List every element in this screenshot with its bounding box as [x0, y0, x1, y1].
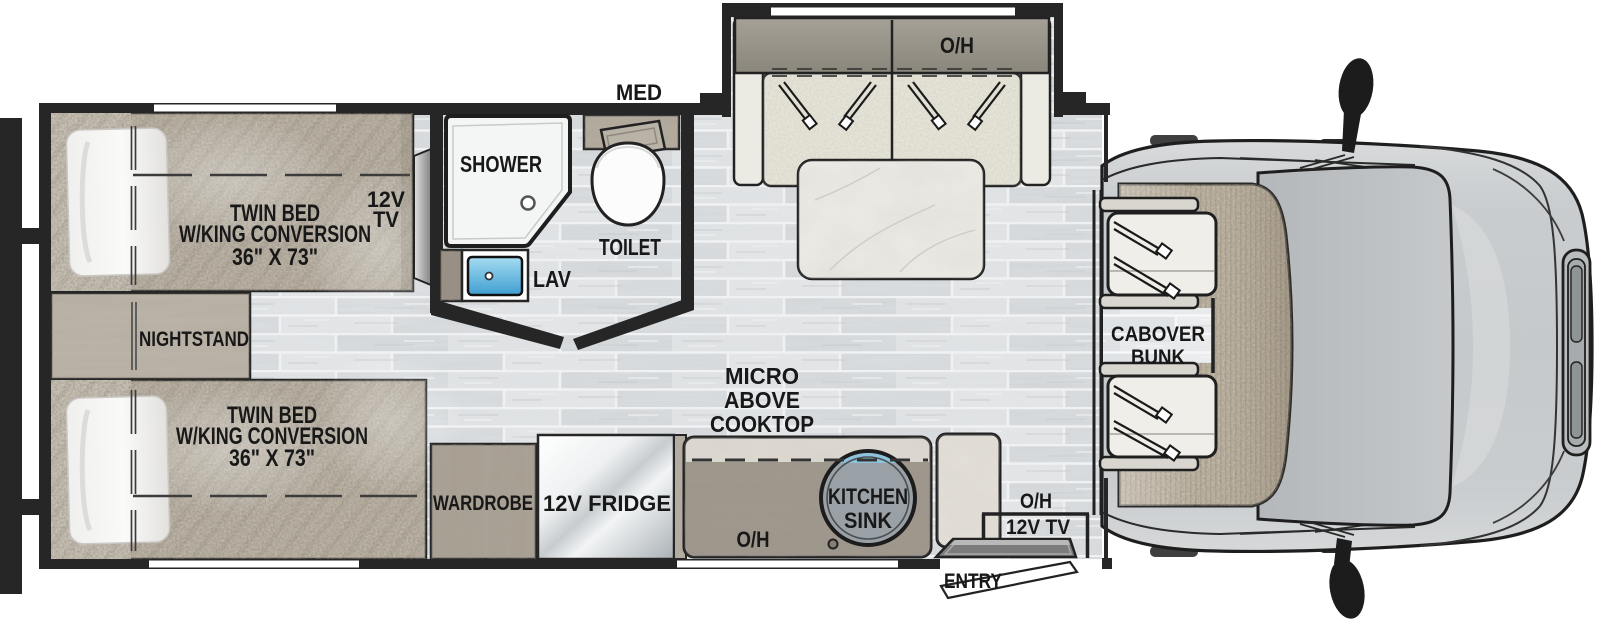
svg-text:TV: TV [373, 207, 399, 232]
svg-text:KITCHEN: KITCHEN [828, 484, 908, 509]
svg-text:O/H: O/H [1020, 490, 1052, 513]
svg-text:MICRO: MICRO [725, 363, 799, 389]
svg-text:ABOVE: ABOVE [724, 387, 800, 413]
svg-text:MED: MED [616, 80, 662, 105]
svg-text:O/H: O/H [737, 527, 770, 552]
svg-text:ENTRY: ENTRY [944, 570, 1002, 593]
svg-text:SINK: SINK [844, 508, 892, 533]
svg-text:COOKTOP: COOKTOP [710, 411, 814, 437]
svg-text:12V TV: 12V TV [1006, 516, 1070, 539]
svg-text:CABOVER: CABOVER [1111, 323, 1205, 346]
svg-text:WARDROBE: WARDROBE [433, 492, 533, 515]
svg-text:NIGHTSTAND: NIGHTSTAND [139, 328, 249, 351]
svg-text:LAV: LAV [533, 266, 572, 292]
svg-text:BUNK: BUNK [1131, 346, 1185, 369]
svg-text:36" X 73": 36" X 73" [232, 244, 318, 271]
svg-text:36" X 73": 36" X 73" [229, 445, 315, 472]
svg-text:O/H: O/H [940, 33, 974, 58]
svg-text:TOILET: TOILET [599, 234, 661, 260]
svg-text:12V FRIDGE: 12V FRIDGE [543, 491, 671, 516]
svg-text:SHOWER: SHOWER [460, 151, 542, 177]
